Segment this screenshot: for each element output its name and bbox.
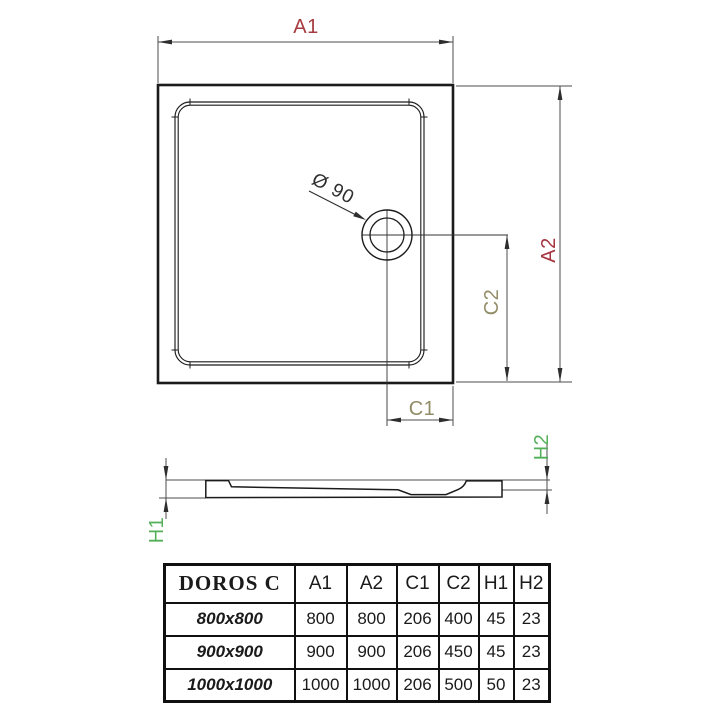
- cell-value: 45: [479, 603, 514, 636]
- tray-profile: [206, 481, 502, 498]
- cell-value: 900: [295, 636, 347, 669]
- cell-value: 23: [514, 603, 550, 636]
- col-header-c1: C1: [397, 565, 439, 603]
- dim-label-c1: C1: [409, 399, 436, 419]
- cell-value: 450: [439, 636, 479, 669]
- col-header-c2: C2: [439, 565, 479, 603]
- cell-value: 206: [397, 603, 439, 636]
- table-title: DOROS C: [165, 565, 295, 603]
- dim-label-a2: A2: [539, 237, 559, 262]
- diagram-canvas: A1 A2 C2 C1 Ø 90 H1 H2 DOROS C A1 A2 C1 …: [0, 0, 720, 720]
- cell-value: 1000: [295, 669, 347, 702]
- table-row: 800x800 800 800 206 400 45 23: [165, 603, 550, 636]
- cell-value: 1000: [347, 669, 397, 702]
- col-header-h1: H1: [479, 565, 514, 603]
- cell-value: 23: [514, 636, 550, 669]
- col-header-h2: H2: [514, 565, 550, 603]
- cell-value: 45: [479, 636, 514, 669]
- row-size-label: 900x900: [165, 636, 295, 669]
- cell-value: 500: [439, 669, 479, 702]
- col-header-a1: A1: [295, 565, 347, 603]
- table-row: 1000x1000 1000 1000 206 500 50 23: [165, 669, 550, 702]
- row-size-label: 800x800: [165, 603, 295, 636]
- table-header-row: DOROS C A1 A2 C1 C2 H1 H2: [165, 565, 550, 603]
- dim-label-h2: H2: [532, 434, 552, 461]
- dim-label-a1: A1: [293, 17, 318, 37]
- cell-value: 23: [514, 669, 550, 702]
- cell-value: 800: [347, 603, 397, 636]
- cell-value: 900: [347, 636, 397, 669]
- tray-side-view: [206, 481, 502, 498]
- dim-label-h1: H1: [147, 517, 167, 544]
- tray-outer-edge: [158, 85, 453, 383]
- cell-value: 206: [397, 636, 439, 669]
- tray-top-view: [158, 85, 453, 383]
- cell-value: 206: [397, 669, 439, 702]
- cell-value: 400: [439, 603, 479, 636]
- cell-value: 50: [479, 669, 514, 702]
- dim-label-c2: C2: [482, 289, 502, 316]
- col-header-a2: A2: [347, 565, 397, 603]
- row-size-label: 1000x1000: [165, 669, 295, 702]
- table-row: 900x900 900 900 206 450 45 23: [165, 636, 550, 669]
- dimensions-table: DOROS C A1 A2 C1 C2 H1 H2 800x800 800 80…: [163, 563, 551, 703]
- cell-value: 800: [295, 603, 347, 636]
